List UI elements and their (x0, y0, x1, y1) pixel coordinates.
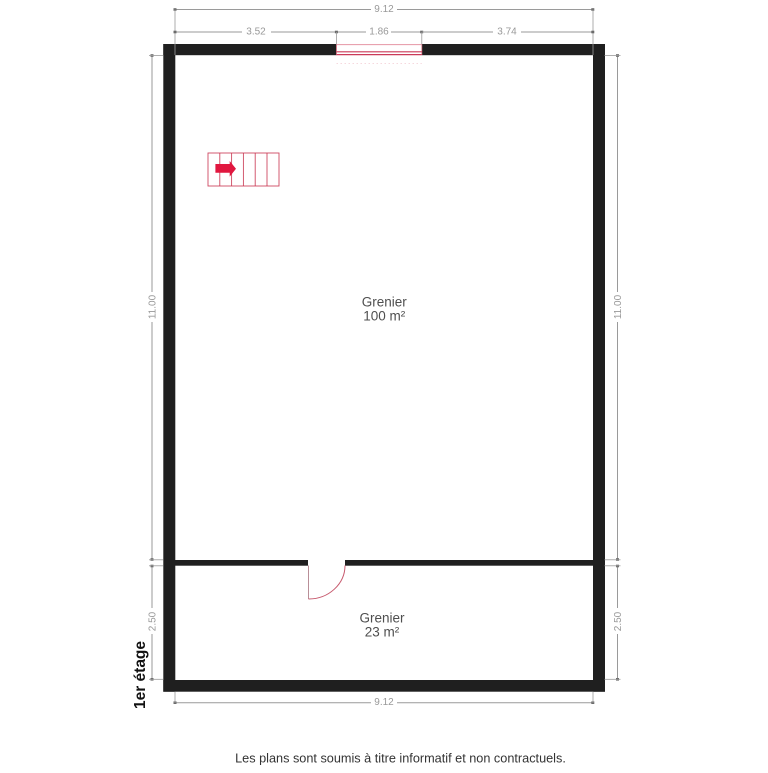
svg-text:Les plans sont soumis à titre: Les plans sont soumis à titre informatif… (235, 752, 566, 766)
svg-text:23 m²: 23 m² (365, 625, 400, 640)
svg-text:1.86: 1.86 (369, 27, 389, 38)
svg-text:100 m²: 100 m² (363, 309, 406, 324)
svg-text:9.12: 9.12 (374, 697, 394, 708)
svg-text:3.74: 3.74 (497, 27, 517, 38)
svg-text:9.12: 9.12 (374, 4, 394, 15)
svg-text:2.50: 2.50 (148, 611, 159, 631)
svg-text:1er étage: 1er étage (132, 641, 149, 709)
svg-text:11.00: 11.00 (613, 294, 624, 319)
svg-text:Grenier: Grenier (362, 295, 408, 310)
svg-text:3.52: 3.52 (246, 27, 266, 38)
svg-text:2.50: 2.50 (613, 611, 624, 631)
svg-text:Grenier: Grenier (359, 611, 405, 626)
svg-text:11.00: 11.00 (148, 294, 159, 319)
